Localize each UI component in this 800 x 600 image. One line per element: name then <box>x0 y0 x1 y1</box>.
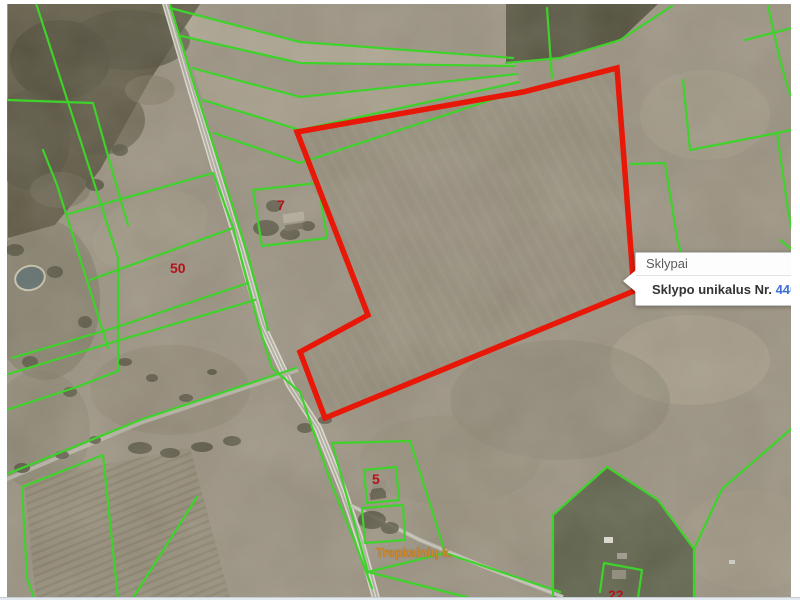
page-margin-right <box>791 0 800 600</box>
map-viewport[interactable]: 50 7 5 22 Trepkalnių k. Sklypai Sklypo u… <box>0 0 800 600</box>
parcel-label-7: 7 <box>277 197 285 213</box>
popup-arrow <box>623 270 636 292</box>
parcel-label-50: 50 <box>170 260 186 276</box>
page-margin-left <box>0 0 7 600</box>
parcel-info-popup: Sklypai Sklypo unikalus Nr. 4400-30 <box>635 252 800 306</box>
parcel-number-label: Sklypo unikalus Nr. <box>652 282 772 297</box>
popup-title: Sklypai <box>636 253 800 276</box>
village-label: Trepkalnių k. <box>376 546 452 560</box>
page-margin-top <box>0 0 800 4</box>
parcel-label-5: 5 <box>372 471 380 487</box>
